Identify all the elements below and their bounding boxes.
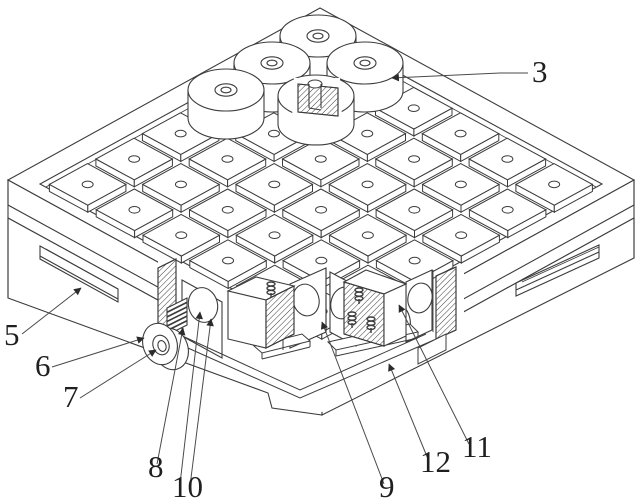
block-side-face [384, 284, 406, 346]
clamp-bolt-head [308, 80, 322, 88]
grid-block-hole [362, 232, 373, 239]
patent-figure-page: 356781091211 [0, 0, 640, 500]
clamp-cylinder-3-hub-bore [360, 60, 370, 66]
grid-block-hole [549, 181, 560, 188]
grid-block-hole [129, 207, 140, 214]
grid-block-hole [455, 130, 466, 137]
grid-block-hole [176, 232, 187, 239]
spring-coil [367, 321, 375, 325]
spring-coil [367, 317, 375, 321]
grid-block-hole [316, 257, 327, 264]
spring-coil [348, 316, 356, 320]
grid-block-hole [502, 156, 513, 163]
ref-label-11: 11 [462, 429, 492, 464]
spring-coil [355, 292, 363, 296]
grid-block-hole [222, 156, 233, 163]
grid-block-hole [315, 156, 326, 163]
spring-coil [348, 312, 356, 316]
grid-block-hole [129, 156, 140, 163]
grid-block-hole [269, 181, 280, 188]
grid-block-hole [222, 207, 233, 214]
grid-block-hole [223, 257, 234, 264]
block-side-face [228, 291, 266, 348]
clamp-cylinder-hub-bore [221, 87, 231, 93]
clamp-cylinder-hub-bore [267, 60, 277, 66]
grid-block-hole [269, 232, 280, 239]
ref-label-12: 12 [420, 444, 451, 479]
grid-block-hole [409, 257, 420, 264]
leader-line-7 [80, 350, 156, 398]
spring-coil [267, 286, 275, 290]
clamp-cylinder-hub-bore [313, 33, 323, 39]
grid-block-hole [175, 181, 186, 188]
ref-label-5: 5 [4, 317, 20, 352]
grid-block-hole [408, 105, 419, 112]
slider-block-right [344, 270, 406, 346]
ref-label-6: 6 [35, 348, 51, 383]
ref-label-3: 3 [532, 54, 548, 89]
patent-figure: 356781091211 [0, 0, 640, 500]
grid-block-hole [455, 181, 466, 188]
grid-block-hole [362, 181, 373, 188]
grid-block-hole [456, 232, 467, 239]
grid-block-hole [268, 130, 279, 137]
leader-line-6 [52, 338, 144, 367]
grid-block-hole [502, 207, 513, 214]
grid-block-hole [316, 207, 327, 214]
spring-coil [267, 282, 275, 286]
spring-coil [355, 288, 363, 292]
grid-block-hole [82, 181, 93, 188]
slider-block-center [228, 277, 294, 348]
section-cut-hatch [298, 84, 338, 116]
ref-label-9: 9 [379, 469, 395, 500]
grid-block-hole [175, 130, 186, 137]
grid-block-hole [409, 156, 420, 163]
ref-label-7: 7 [63, 379, 79, 414]
grid-block-hole [362, 130, 373, 137]
grid-block-hole [409, 207, 420, 214]
ref-label-10: 10 [172, 469, 203, 500]
ref-label-8: 8 [148, 449, 164, 484]
